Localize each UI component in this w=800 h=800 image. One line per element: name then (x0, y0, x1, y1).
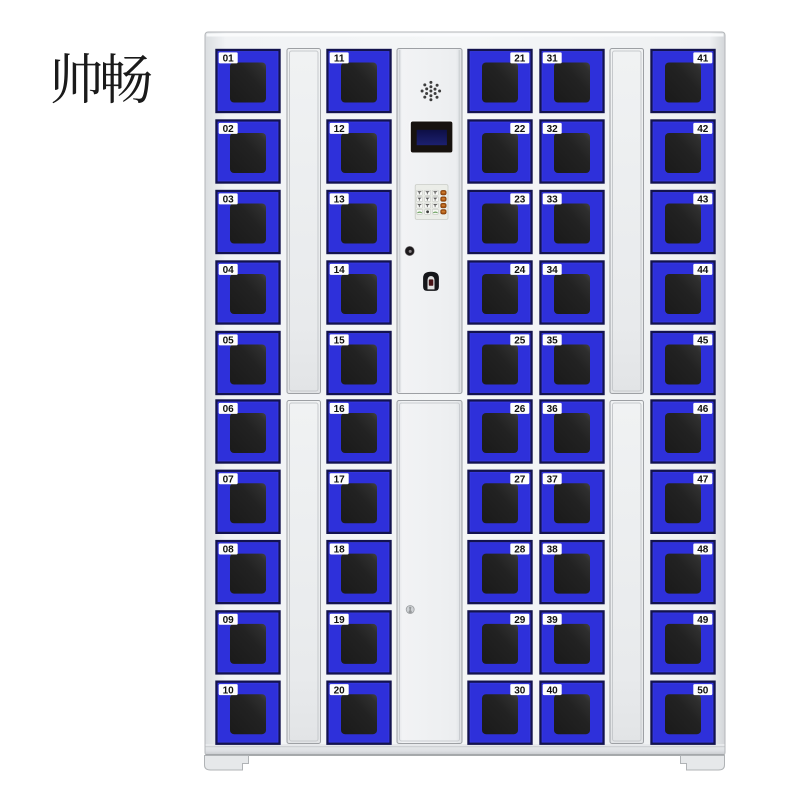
svg-text:31: 31 (547, 54, 559, 65)
svg-text:16: 16 (334, 404, 346, 415)
svg-text:39: 39 (547, 615, 559, 626)
svg-text:12: 12 (334, 124, 346, 135)
svg-text:43: 43 (697, 195, 709, 206)
svg-text:18: 18 (334, 545, 346, 556)
svg-text:33: 33 (547, 195, 559, 206)
svg-text:11: 11 (334, 54, 345, 65)
svg-text:23: 23 (514, 195, 526, 206)
svg-text:19: 19 (334, 615, 346, 626)
svg-text:26: 26 (514, 404, 526, 415)
svg-text:15: 15 (334, 336, 346, 347)
svg-text:44: 44 (697, 265, 709, 276)
svg-text:36: 36 (547, 404, 559, 415)
svg-text:37: 37 (547, 474, 559, 485)
svg-text:48: 48 (697, 545, 709, 556)
svg-text:35: 35 (547, 336, 559, 347)
svg-text:10: 10 (223, 685, 235, 696)
svg-text:34: 34 (547, 265, 559, 276)
svg-text:21: 21 (514, 54, 526, 65)
svg-text:42: 42 (697, 124, 709, 135)
svg-text:49: 49 (697, 615, 709, 626)
svg-text:28: 28 (514, 545, 526, 556)
svg-text:50: 50 (697, 685, 709, 696)
svg-text:32: 32 (547, 124, 559, 135)
svg-text:30: 30 (514, 685, 526, 696)
svg-text:25: 25 (514, 336, 526, 347)
svg-text:38: 38 (547, 545, 559, 556)
svg-text:08: 08 (223, 545, 235, 556)
svg-text:29: 29 (514, 615, 526, 626)
svg-text:01: 01 (223, 54, 235, 65)
svg-text:20: 20 (334, 685, 346, 696)
svg-text:04: 04 (223, 265, 235, 276)
svg-text:06: 06 (223, 404, 235, 415)
svg-text:47: 47 (697, 474, 709, 485)
svg-text:14: 14 (334, 265, 346, 276)
svg-text:45: 45 (697, 336, 709, 347)
svg-text:13: 13 (334, 195, 346, 206)
svg-text:46: 46 (697, 404, 709, 415)
svg-text:24: 24 (514, 265, 526, 276)
svg-text:03: 03 (223, 195, 235, 206)
svg-text:40: 40 (547, 685, 559, 696)
svg-text:05: 05 (223, 336, 235, 347)
svg-text:09: 09 (223, 615, 235, 626)
svg-text:27: 27 (514, 474, 526, 485)
svg-text:07: 07 (223, 474, 235, 485)
svg-text:22: 22 (514, 124, 526, 135)
svg-text:17: 17 (334, 474, 346, 485)
svg-text:41: 41 (697, 54, 709, 65)
svg-text:02: 02 (223, 124, 235, 135)
